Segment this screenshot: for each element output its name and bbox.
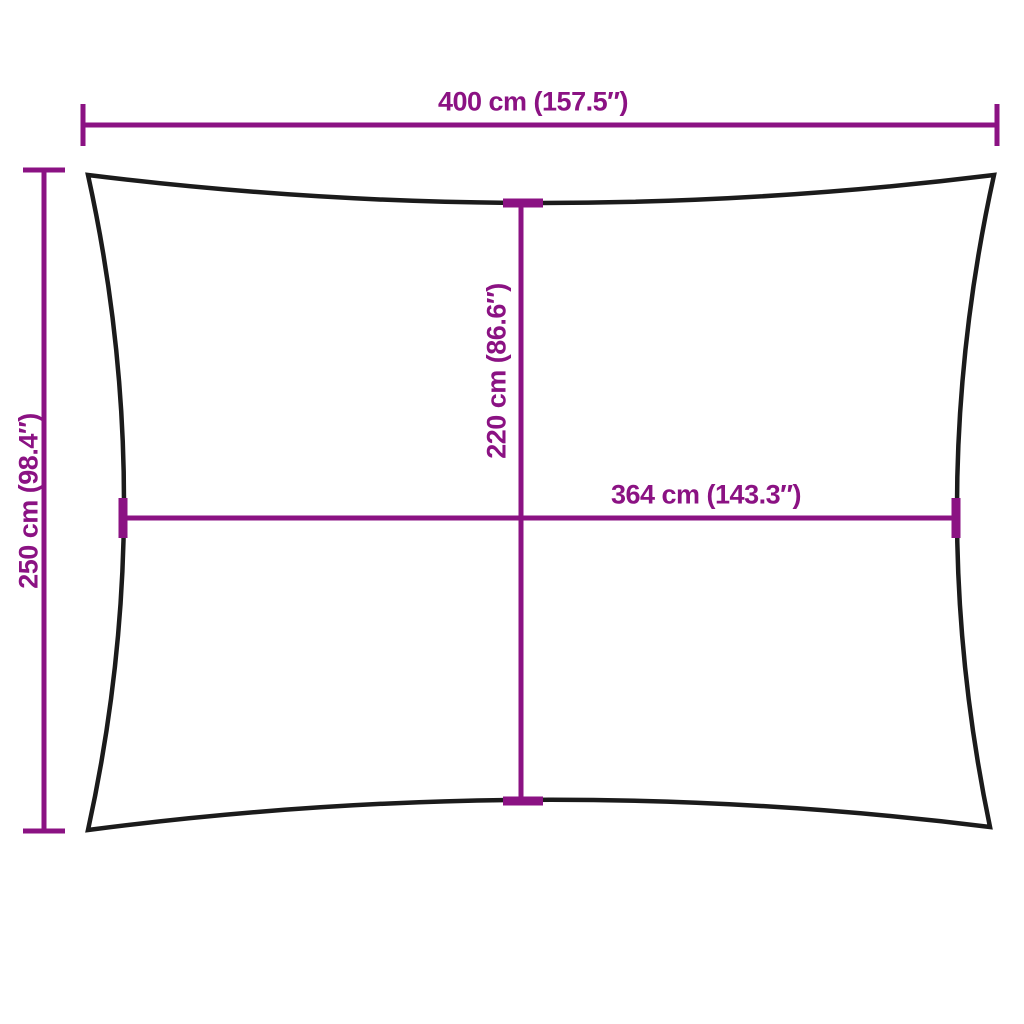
top-width-label: 400 cm (157.5″): [438, 89, 628, 116]
inner-height-label: 220 cm (86.6″): [484, 283, 511, 459]
diagram-svg: [0, 0, 1024, 1024]
dimension-diagram: 400 cm (157.5″) 250 cm (98.4″) 220 cm (8…: [0, 0, 1024, 1024]
sail-outline: [88, 175, 994, 830]
left-height-label: 250 cm (98.4″): [16, 413, 43, 589]
dimension-inner-width: [123, 498, 956, 538]
inner-width-label: 364 cm (143.3″): [611, 482, 801, 509]
